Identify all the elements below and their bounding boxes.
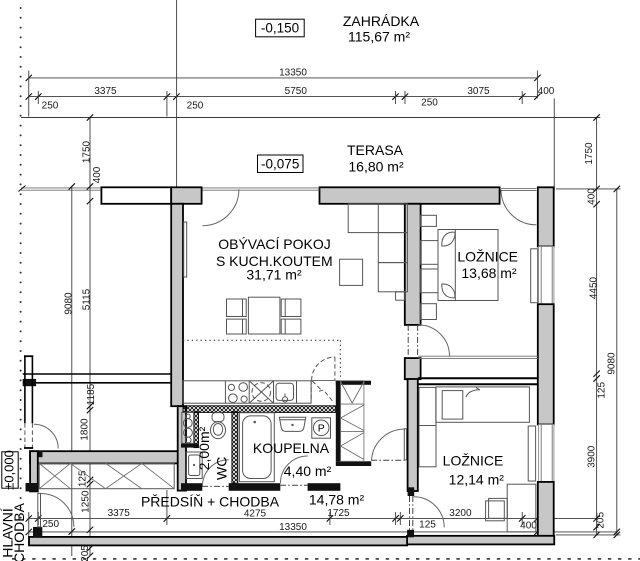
svg-text:1750: 1750 [584, 142, 595, 165]
svg-text:9080: 9080 [606, 352, 617, 375]
svg-text:250: 250 [42, 519, 59, 530]
svg-text:4450: 4450 [588, 276, 599, 299]
svg-text:1250: 1250 [80, 490, 91, 513]
svg-text:1725: 1725 [327, 508, 350, 519]
svg-text:WC: WC [213, 457, 229, 480]
svg-text:3075: 3075 [467, 86, 490, 97]
svg-text:14,78 m²: 14,78 m² [309, 491, 365, 507]
svg-text:125: 125 [596, 382, 607, 399]
svg-text:P: P [318, 423, 325, 435]
svg-text:CHODBA: CHODBA [11, 502, 27, 561]
svg-text:5750: 5750 [285, 86, 308, 97]
svg-text:115,67 m²: 115,67 m² [348, 29, 410, 45]
svg-text:3900: 3900 [587, 445, 598, 468]
svg-text:5115: 5115 [81, 288, 92, 310]
svg-text:1185: 1185 [86, 383, 97, 405]
svg-text:205: 205 [80, 545, 91, 561]
svg-text:400: 400 [538, 86, 555, 97]
svg-text:400: 400 [92, 166, 103, 183]
svg-text:4275: 4275 [244, 508, 267, 519]
svg-text:TERASA: TERASA [347, 142, 404, 158]
svg-text:3200: 3200 [449, 508, 472, 519]
svg-text:31,71 m²: 31,71 m² [246, 267, 302, 283]
svg-text:3375: 3375 [94, 86, 117, 97]
svg-text:OBÝVACÍ POKOJ: OBÝVACÍ POKOJ [218, 236, 331, 252]
svg-text:9080: 9080 [63, 292, 74, 315]
svg-text:12,14 m²: 12,14 m² [449, 472, 505, 488]
svg-text:205: 205 [596, 512, 607, 529]
svg-text:1750: 1750 [81, 140, 92, 163]
svg-text:13350: 13350 [279, 68, 307, 79]
svg-text:1800: 1800 [79, 418, 90, 441]
svg-text:3375: 3375 [108, 508, 131, 519]
svg-text:KOUPELNA: KOUPELNA [253, 440, 330, 456]
svg-text:-0,150: -0,150 [261, 21, 299, 36]
svg-text:2,00m²: 2,00m² [196, 426, 212, 470]
svg-text:250: 250 [42, 100, 59, 111]
svg-text:16,80 m²: 16,80 m² [348, 159, 404, 175]
svg-text:400: 400 [586, 188, 597, 205]
svg-text:4,40 m²: 4,40 m² [284, 463, 332, 479]
svg-text:400: 400 [520, 520, 537, 531]
svg-text:13350: 13350 [279, 522, 307, 533]
svg-text:13,68 m²: 13,68 m² [461, 265, 517, 281]
svg-text:LOŽNICE: LOŽNICE [457, 249, 518, 265]
svg-text:125: 125 [419, 519, 436, 530]
svg-text:PŘEDSÍŇ + CHODBA: PŘEDSÍŇ + CHODBA [141, 494, 280, 510]
svg-text:250: 250 [421, 97, 438, 108]
svg-text:LOŽNICE: LOŽNICE [443, 453, 504, 469]
svg-text:ZAHRÁDKA: ZAHRÁDKA [343, 13, 420, 29]
svg-text:±0,000: ±0,000 [1, 450, 16, 490]
svg-text:-0,075: -0,075 [261, 156, 299, 171]
svg-text:250: 250 [187, 100, 204, 111]
